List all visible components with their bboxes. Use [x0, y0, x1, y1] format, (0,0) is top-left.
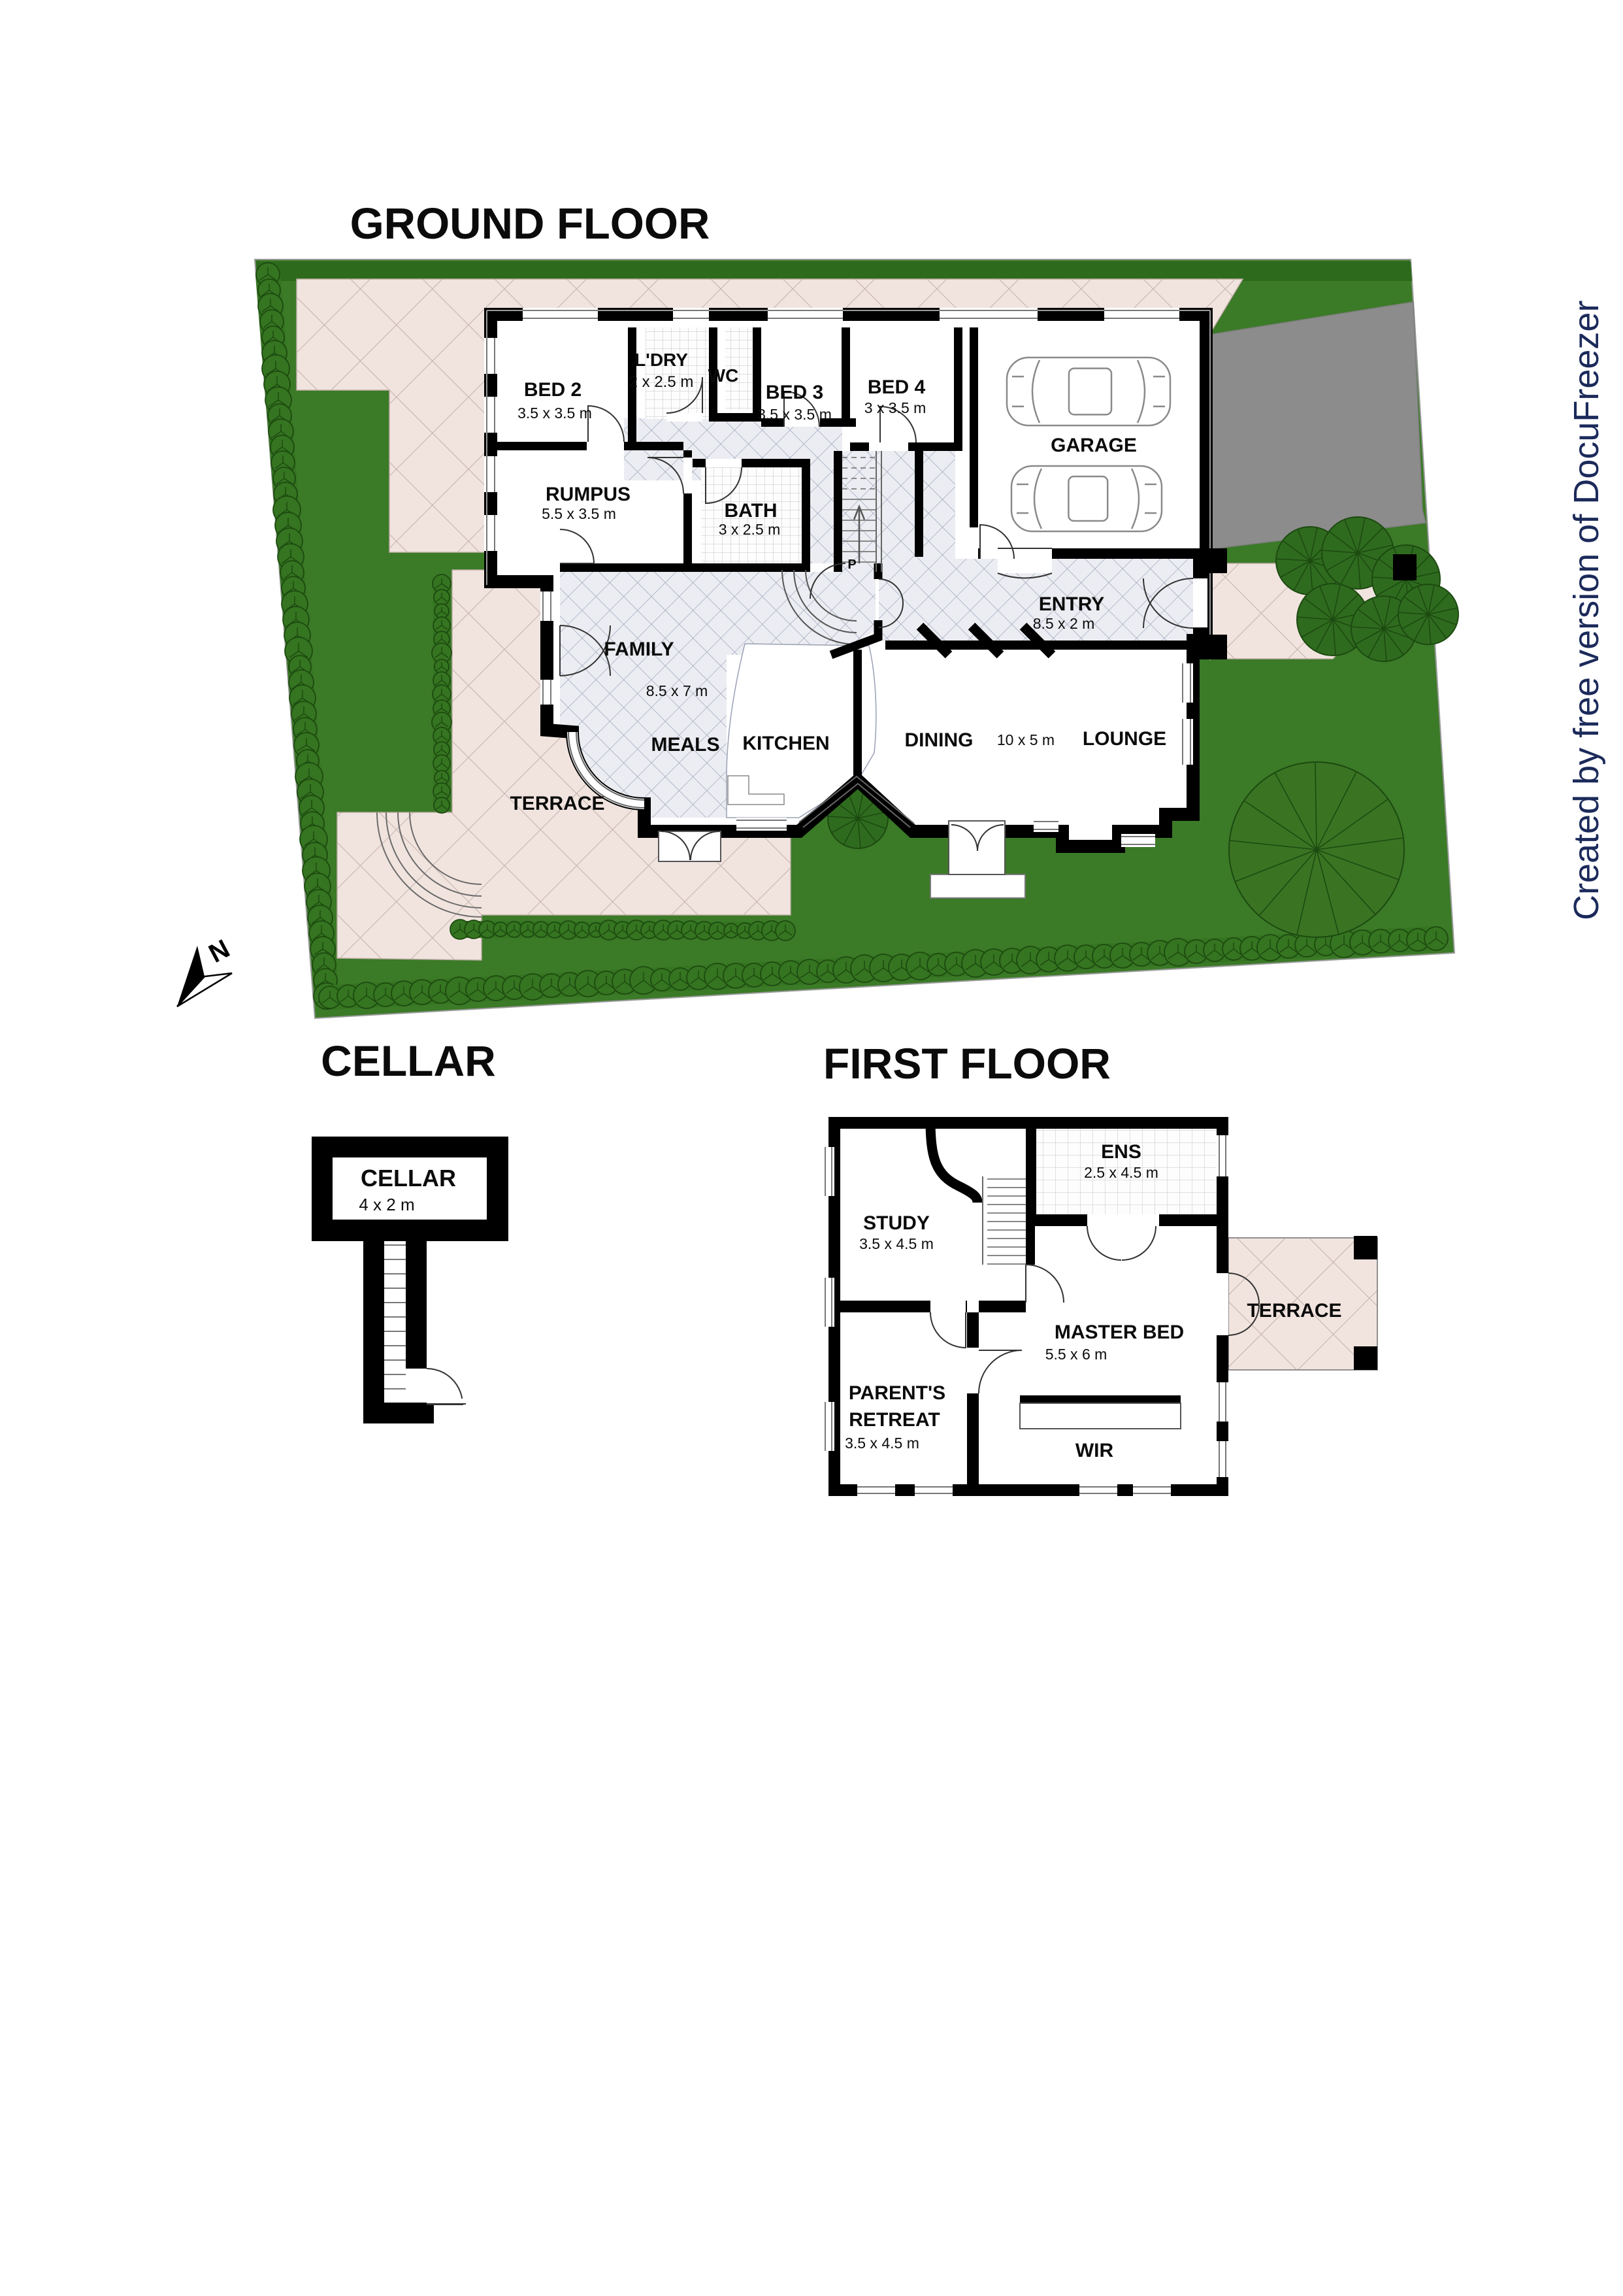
- svg-text:3 x 2.5 m: 3 x 2.5 m: [719, 521, 781, 538]
- svg-text:2.5 x 4.5 m: 2.5 x 4.5 m: [1084, 1164, 1158, 1181]
- svg-text:KITCHEN: KITCHEN: [742, 733, 829, 754]
- svg-text:3 x 3.5 m: 3 x 3.5 m: [864, 399, 926, 416]
- svg-text:STUDY: STUDY: [863, 1212, 930, 1234]
- svg-text:RETREAT: RETREAT: [849, 1409, 940, 1431]
- svg-text:3.5 x 3.5 m: 3.5 x 3.5 m: [517, 405, 592, 422]
- svg-text:MASTER BED: MASTER BED: [1055, 1322, 1184, 1343]
- svg-text:TERRACE: TERRACE: [510, 793, 604, 814]
- svg-text:5.5 x 6 m: 5.5 x 6 m: [1045, 1346, 1107, 1363]
- svg-text:BATH: BATH: [724, 500, 777, 522]
- svg-text:WIR: WIR: [1075, 1440, 1114, 1461]
- svg-text:3.5 x 4.5 m: 3.5 x 4.5 m: [859, 1235, 934, 1252]
- svg-text:GROUND FLOOR: GROUND FLOOR: [350, 199, 710, 248]
- svg-text:L'DRY: L'DRY: [634, 350, 688, 370]
- svg-text:2 x 2.5 m: 2 x 2.5 m: [629, 373, 694, 391]
- svg-text:Created by free version of Doc: Created by free version of DocuFreezer: [1567, 301, 1606, 920]
- svg-text:FIRST FLOOR: FIRST FLOOR: [823, 1039, 1111, 1088]
- svg-text:MEALS: MEALS: [651, 734, 720, 756]
- svg-text:3.5 x 4.5 m: 3.5 x 4.5 m: [845, 1435, 919, 1452]
- svg-text:BED 4: BED 4: [868, 376, 926, 398]
- svg-text:LOUNGE: LOUNGE: [1083, 728, 1166, 750]
- svg-text:TERRACE: TERRACE: [1247, 1300, 1341, 1322]
- svg-text:ENTRY: ENTRY: [1039, 593, 1105, 615]
- svg-text:3.5 x 3.5 m: 3.5 x 3.5 m: [757, 406, 832, 423]
- svg-text:BED 3: BED 3: [766, 382, 823, 403]
- svg-text:DINING: DINING: [905, 729, 974, 751]
- svg-text:5.5 x 3.5 m: 5.5 x 3.5 m: [542, 505, 616, 522]
- svg-text:4 x 2 m: 4 x 2 m: [359, 1195, 414, 1214]
- svg-text:GARAGE: GARAGE: [1051, 435, 1137, 456]
- svg-text:PARENT'S: PARENT'S: [849, 1382, 945, 1404]
- svg-text:CELLAR: CELLAR: [321, 1037, 496, 1085]
- svg-text:P: P: [847, 557, 856, 572]
- svg-text:8.5 x 7 m: 8.5 x 7 m: [646, 682, 708, 699]
- svg-text:RUMPUS: RUMPUS: [546, 484, 631, 505]
- svg-text:10 x 5 m: 10 x 5 m: [997, 731, 1055, 748]
- svg-text:FAMILY: FAMILY: [604, 639, 674, 660]
- svg-text:BED 2: BED 2: [524, 379, 582, 401]
- svg-text:8.5 x 2 m: 8.5 x 2 m: [1033, 615, 1095, 632]
- svg-text:WC: WC: [708, 365, 739, 386]
- svg-text:CELLAR: CELLAR: [361, 1165, 456, 1191]
- svg-text:ENS: ENS: [1101, 1141, 1141, 1163]
